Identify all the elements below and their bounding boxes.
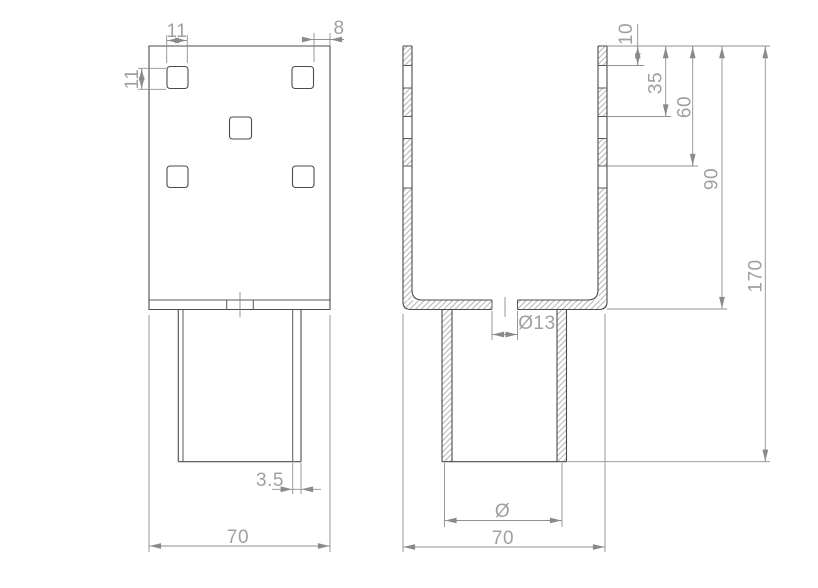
dim-label-hole-height: 11 (122, 69, 143, 90)
front-view (149, 46, 330, 462)
drawing-canvas: 11 8 11 3.5 70 10 35 60 90 170 Ø13 Ø 70 (0, 0, 818, 588)
dim-label-front-width: 70 (227, 527, 249, 548)
front-plate-outline (149, 46, 330, 310)
square-hole-top-right (292, 67, 314, 89)
technical-drawing: 11 8 11 3.5 70 10 35 60 90 170 Ø13 Ø 70 (0, 0, 818, 588)
dim-label-channel-height: 90 (702, 168, 723, 190)
wall-hole-boundaries (403, 66, 607, 189)
dim-label-tube-wall: 3.5 (256, 470, 284, 491)
square-hole-bottom-left (167, 166, 188, 188)
side-hatching (404, 47, 607, 462)
dim-label-overall-height: 170 (746, 259, 767, 292)
dim-label-hole-row2: 35 (646, 72, 667, 94)
channel-outer-outline (403, 46, 607, 310)
dim-label-side-width: 70 (492, 528, 514, 549)
side-view (403, 46, 607, 462)
front-tube (178, 310, 301, 462)
dim-label-hole-top-offset: 10 (616, 23, 637, 45)
dim-label-corner-offset: 8 (333, 18, 344, 39)
dim-label-hole-row3: 60 (675, 96, 696, 118)
square-hole-center (230, 117, 252, 139)
dim-label-tube-dia: Ø (495, 501, 510, 522)
front-square-holes (167, 67, 314, 188)
square-hole-bottom-right (293, 166, 315, 188)
dim-label-base-hole-dia: Ø13 (518, 313, 555, 334)
dim-label-hole-width: 11 (167, 21, 188, 42)
square-hole-top-left (167, 67, 188, 89)
channel-inner-outline (412, 46, 598, 300)
